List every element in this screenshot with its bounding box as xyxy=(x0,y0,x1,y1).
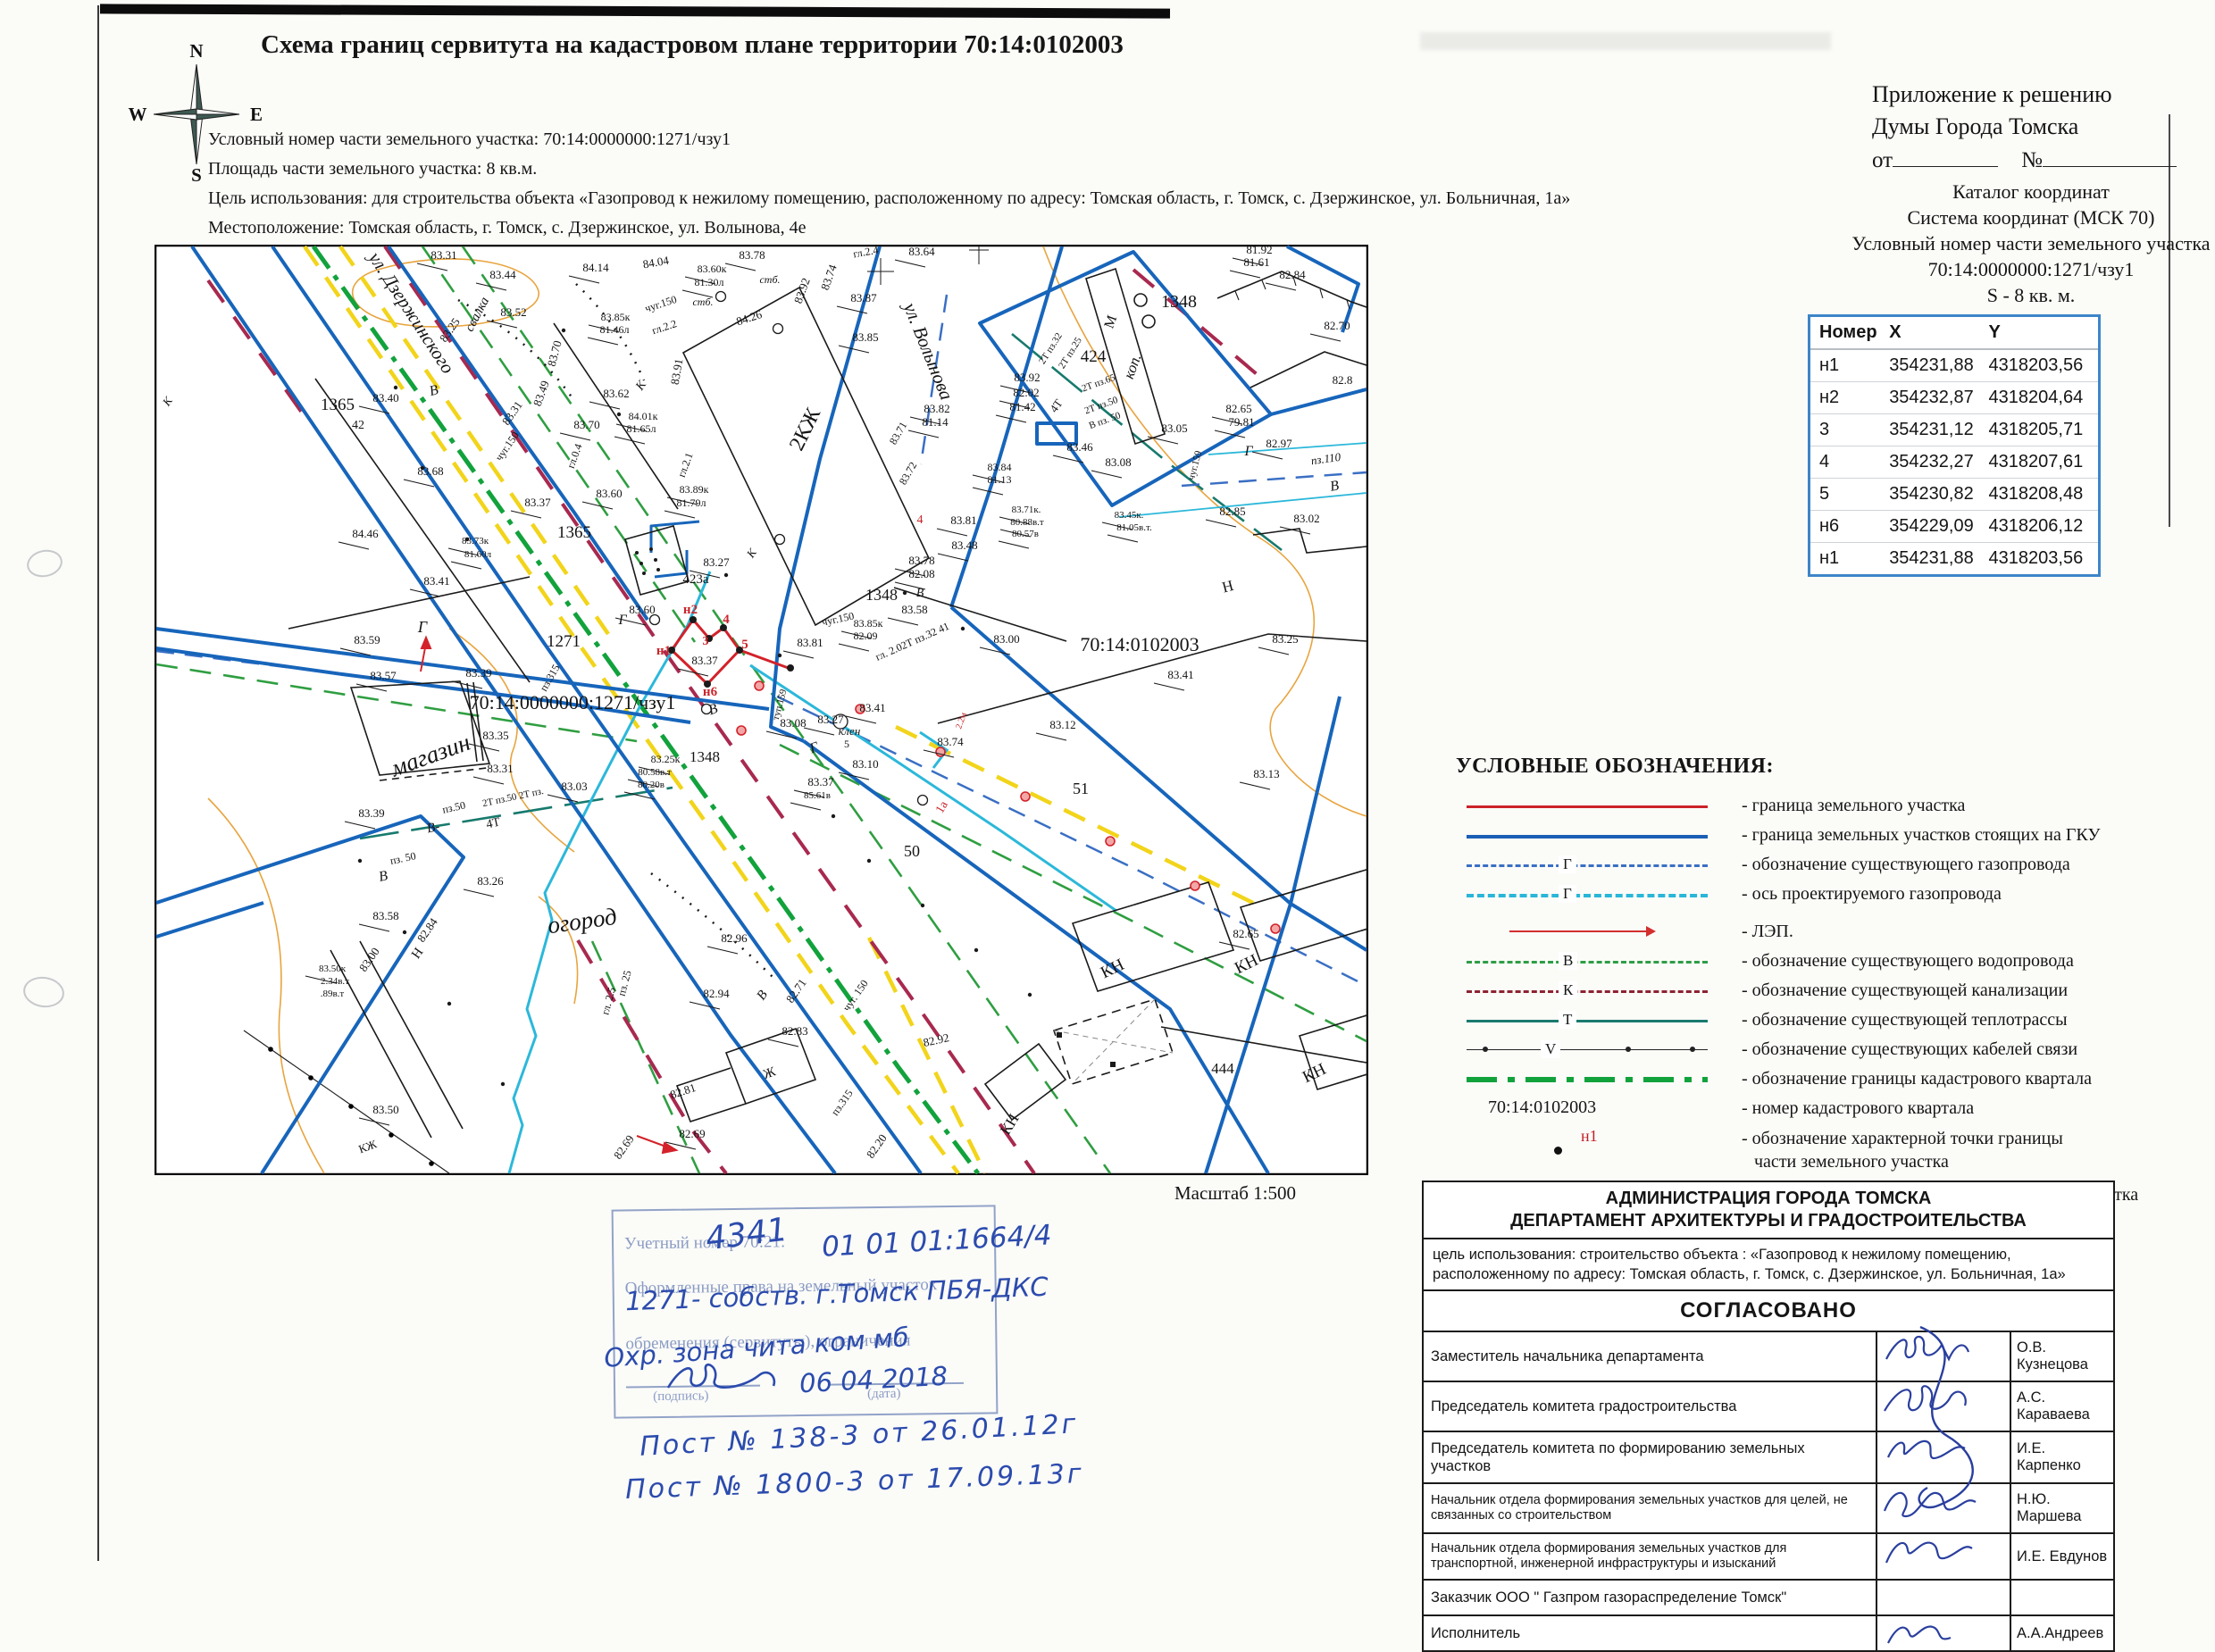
coordinate-cell: 354231,88 xyxy=(1887,349,1986,382)
compass-w: W xyxy=(129,104,147,125)
handwritten-resolution-2: Пост № 1800-3 от 17.09.13г xyxy=(625,1458,1085,1506)
annex-from-label: от xyxy=(1872,148,1893,172)
map-label: 85.61в xyxy=(804,790,831,801)
map-label: 82.96 xyxy=(721,931,748,945)
map-label: 82.85 xyxy=(1219,505,1245,518)
map-label: 70:14:0102003 xyxy=(1080,633,1199,655)
map-label: 83.45к. xyxy=(1115,510,1144,521)
map-label: 82.94 xyxy=(703,987,730,1000)
map-label: 83.25к xyxy=(651,753,681,765)
map-label: 84.46 xyxy=(352,527,379,540)
info-line-area: Площадь части земельного участка: 8 кв.м… xyxy=(208,154,1780,184)
approval-name xyxy=(2011,1581,2113,1614)
coordinate-cell: 4318207,61 xyxy=(1987,446,2100,479)
coordinate-cell: 354230,82 xyxy=(1887,479,1986,511)
approval-name: Н.Ю. Маршева xyxy=(2011,1484,2113,1532)
map-label: 83.44 xyxy=(489,268,516,281)
annex-block: Приложение к решению Думы Города Томска … xyxy=(1872,79,2215,177)
map-label: 80.58в.т xyxy=(638,767,672,778)
approval-row: Заместитель начальника департаментаО.В. … xyxy=(1424,1332,2113,1382)
approval-role: Заказчик ООО " Газпром газораспределение… xyxy=(1424,1581,1877,1614)
approval-role: Начальник отдела формирования земельных … xyxy=(1424,1484,1877,1532)
map-label: 83.39 xyxy=(358,806,384,820)
map-label: 83.37 xyxy=(524,496,551,509)
coordinate-row: н1354231,884318203,56 xyxy=(1810,543,2100,576)
signature-scribble xyxy=(1879,1616,2004,1652)
map-label: 83.58 xyxy=(901,603,927,616)
approval-name: И.Е. Карпенко xyxy=(2011,1432,2113,1482)
map-label: 1365 xyxy=(321,396,355,414)
coordinate-cell: 354231,12 xyxy=(1887,414,1986,446)
scan-artifact-smudge xyxy=(1420,32,1831,50)
map-label: 83.50к xyxy=(319,964,347,974)
map-label: 83.37 xyxy=(691,654,718,667)
map-label: 83.85к xyxy=(854,617,883,630)
header-info-block: Условный номер части земельного участка:… xyxy=(208,125,1780,243)
map-label: 83.37 xyxy=(807,775,834,788)
approval-name: О.В. Кузнецова xyxy=(2011,1332,2113,1381)
map-label: 83.89к xyxy=(680,483,709,496)
map-label: 83.58 xyxy=(372,909,398,922)
map-label: Г xyxy=(1243,444,1253,459)
scanned-document-page: { "compass": {"n":"N","e":"E","s":"S","w… xyxy=(0,0,2215,1565)
map-label: 2.34в.т xyxy=(321,976,349,987)
map-legend: УСЛОВНЫЕ ОБОЗНАЧЕНИЯ: - граница земельно… xyxy=(1456,755,2170,1220)
map-label: 83.85к xyxy=(601,311,631,323)
catalog-title: Каталог координат xyxy=(1843,179,2215,204)
map-label: 5 xyxy=(741,638,748,652)
map-label: н1 xyxy=(656,644,671,658)
map-label: 83.92 xyxy=(1014,371,1040,384)
map-label: 83.81 xyxy=(950,513,976,527)
coordinate-row: 4354232,274318207,61 xyxy=(1810,446,2100,479)
compass-s: S xyxy=(191,164,202,185)
legend-item-water: В - обозначение существующего водопровод… xyxy=(1456,950,2170,980)
approval-role: Заместитель начальника департамента xyxy=(1424,1332,1877,1381)
coordinate-cell: н6 xyxy=(1810,511,1888,543)
map-label: 83.41 xyxy=(1167,668,1193,681)
legend-item-projected-gas: Г - ось проектируемого газопровода xyxy=(1456,883,2170,913)
approval-role: Исполнитель xyxy=(1424,1616,1877,1650)
col-x: X xyxy=(1887,316,1986,350)
signature-scribble xyxy=(1879,1382,2004,1418)
water-swatch: В xyxy=(1456,950,1742,973)
map-label: 83.26 xyxy=(477,874,504,888)
legend-item-sewer: К - обозначение существующей канализации xyxy=(1456,980,2170,1009)
approval-signature-cell xyxy=(1877,1382,2011,1431)
coordinate-row: 5354230,824318208,48 xyxy=(1810,479,2100,511)
approval-signature-cell xyxy=(1877,1332,2011,1381)
signature-scribble xyxy=(1879,1484,2004,1520)
col-number: Номер xyxy=(1810,316,1888,350)
copy-hole-mark xyxy=(24,546,64,580)
map-label: 83.82 xyxy=(924,402,949,415)
map-label: 1348 xyxy=(690,748,720,765)
coordinate-cell: 354232,87 xyxy=(1887,382,1986,414)
approval-name: И.Е. Евдунов xyxy=(2011,1534,2113,1579)
map-label: 83.57 xyxy=(370,669,397,682)
coordinate-cell: н2 xyxy=(1810,382,1888,414)
info-line-location: Местоположение: Томская область, г. Томс… xyxy=(208,213,1780,243)
approval-signature-cell xyxy=(1877,1581,2011,1614)
map-label: 82.84 xyxy=(1279,268,1306,281)
approval-row: Председатель комитета по формированию зе… xyxy=(1424,1432,2113,1484)
coordinates-header-row: Номер X Y xyxy=(1810,316,2100,350)
map-label: 83.74 xyxy=(937,735,964,748)
map-label: 83.64 xyxy=(908,245,935,258)
map-label: 81.79л xyxy=(677,496,706,509)
map-label: 83.60 xyxy=(596,487,622,500)
approval-role: Председатель комитета по формированию зе… xyxy=(1424,1432,1877,1482)
quarter-number-swatch: 70:14:0102003 xyxy=(1456,1097,1742,1121)
approval-row: Председатель комитета градостроительства… xyxy=(1424,1382,2113,1432)
map-label: 83.31 xyxy=(487,762,513,775)
map-label: н6 xyxy=(703,685,718,699)
coordinate-cell: 4318206,12 xyxy=(1987,511,2100,543)
map-label: 444 xyxy=(1211,1060,1234,1077)
approval-signature-cell xyxy=(1877,1534,2011,1579)
approval-org: АДМИНИСТРАЦИЯ ГОРОДА ТОМСКА ДЕПАРТАМЕНТ … xyxy=(1424,1182,2113,1239)
map-label: 82.83 xyxy=(782,1024,807,1038)
coordinate-cell: 3 xyxy=(1810,414,1888,446)
map-label: 83.12 xyxy=(1049,718,1075,731)
approval-signature-cell xyxy=(1877,1484,2011,1532)
map-label: 80.57в xyxy=(1012,529,1039,539)
annex-date-blank xyxy=(1893,148,1998,167)
map-label: 82.09 xyxy=(854,630,878,642)
approval-role: Начальник отдела формирования земельных … xyxy=(1424,1534,1877,1579)
map-label: 83.25 xyxy=(1272,632,1298,646)
map-label: 83.52 xyxy=(500,305,526,319)
map-label: 81.61 xyxy=(1243,255,1269,269)
scan-artifact-top-bar xyxy=(100,4,1170,18)
quarter-boundary-swatch xyxy=(1456,1068,1742,1091)
legend-item-existing-gas: Г - обозначение существующего газопровод… xyxy=(1456,854,2170,883)
map-label: 83.84 xyxy=(988,461,1012,473)
map-label: 83.81 xyxy=(797,636,823,649)
legend-item-parcel-boundary: - граница земельного участка xyxy=(1456,795,2170,824)
coordinate-cell: 354231,88 xyxy=(1887,543,1986,576)
cadastral-map: ул. Дзержинскогоул. Волыновамагазиногоро… xyxy=(155,245,1368,1175)
map-label: 83.35 xyxy=(482,729,508,742)
map-label: н2 xyxy=(683,603,698,617)
boundary-point-swatch: н1 xyxy=(1456,1127,1742,1150)
map-label: 83.08 xyxy=(780,716,806,730)
catalog-parcel-number: 70:14:0000000:1271/чзу1 xyxy=(1843,256,2215,282)
annex-line2: Думы Города Томска xyxy=(1872,111,2215,143)
annex-num-blank xyxy=(2043,148,2177,167)
map-label: 83.70 xyxy=(573,418,599,431)
catalog-parcel-caption: Условный номер части земельного участка xyxy=(1843,230,2215,256)
map-label: 83.60к xyxy=(698,263,727,275)
map-label: 83.05 xyxy=(1161,421,1187,435)
coordinate-cell: 4318203,56 xyxy=(1987,349,2100,382)
sewer-swatch: К xyxy=(1456,980,1742,1003)
approval-table: АДМИНИСТРАЦИЯ ГОРОДА ТОМСКА ДЕПАРТАМЕНТ … xyxy=(1422,1181,2115,1652)
approval-row: Начальник отдела формирования земельных … xyxy=(1424,1534,2113,1581)
coordinate-cell: 4318203,56 xyxy=(1987,543,2100,576)
coordinate-cell: 4318205,71 xyxy=(1987,414,2100,446)
col-y: Y xyxy=(1987,316,2100,350)
map-label: 83.85 xyxy=(852,330,878,344)
map-label: 4 xyxy=(723,613,730,627)
legend-item-cables: V - обозначение существующих кабелей свя… xyxy=(1456,1039,2170,1068)
approval-role: Председатель комитета градостроительства xyxy=(1424,1382,1877,1431)
map-label: стб. xyxy=(692,296,713,308)
map-label: 83.46 xyxy=(1066,440,1093,454)
map-label: .89в.т xyxy=(321,989,345,999)
map-scale-label: Масштаб 1:500 xyxy=(1174,1182,1407,1205)
map-label: 83.02 xyxy=(1293,512,1319,525)
map-label: 70:14:0000000:1271/чзу1 xyxy=(470,691,676,713)
blue-line-swatch xyxy=(1456,824,1742,847)
catalog-area: S - 8 кв. м. xyxy=(1843,282,2215,308)
gas-dashed-swatch: Г xyxy=(1456,854,1742,877)
info-line-cadastral-number: Условный номер части земельного участка:… xyxy=(208,125,1780,154)
coordinate-cell: 5 xyxy=(1810,479,1888,511)
map-label: 82.8 xyxy=(1333,373,1353,387)
map-label: 81.65л xyxy=(627,422,656,435)
map-label: 1348 xyxy=(865,586,898,604)
map-label: 82.08 xyxy=(908,567,934,580)
map-label: 5 xyxy=(844,738,849,750)
map-label: 81.42 xyxy=(1009,400,1035,413)
legend-item-quarter-boundary: - обозначение границы кадастрового кварт… xyxy=(1456,1068,2170,1097)
map-label: 83.60 xyxy=(629,603,655,616)
approval-signature-cell xyxy=(1877,1432,2011,1482)
legend-item-lep: - ЛЭП. xyxy=(1456,913,2170,950)
map-label: 83.13 xyxy=(1253,767,1279,780)
coordinate-row: н2354232,874318204,64 xyxy=(1810,382,2100,414)
map-label: 82.02 xyxy=(1013,386,1039,399)
coordinate-row: н1354231,884318203,56 xyxy=(1810,349,2100,382)
approval-name: А.А.Андреев xyxy=(2011,1616,2113,1650)
map-label: 1365 xyxy=(557,523,591,542)
map-label: 83.39 xyxy=(465,666,491,680)
annex-num-label: № xyxy=(2021,148,2043,172)
map-label: 1348 xyxy=(1161,292,1197,312)
map-label: 83.48 xyxy=(951,538,977,552)
map-label: клен xyxy=(839,724,861,738)
info-line-purpose: Цель использования: для строительства об… xyxy=(208,184,1780,213)
signature-scribble xyxy=(1879,1432,2004,1468)
annex-from-line: от№ xyxy=(1872,145,2215,177)
map-label: 50 xyxy=(904,842,920,860)
heating-swatch: Т xyxy=(1456,1009,1742,1032)
approval-name: А.С. Караваева xyxy=(2011,1382,2113,1431)
map-label: 83.62 xyxy=(603,387,629,400)
approval-agreed-heading: СОГЛАСОВАНО xyxy=(1424,1291,2113,1332)
map-label: 81.30л xyxy=(695,276,724,288)
map-label: 83.78 xyxy=(908,554,934,567)
map-label: 3 xyxy=(703,635,709,648)
coordinate-row: н6354229,094318206,12 xyxy=(1810,511,2100,543)
legend-item-heating: Т - обозначение существующей теплотрассы xyxy=(1456,1009,2170,1039)
map-label: 83.50 xyxy=(372,1103,398,1116)
map-label: 4 xyxy=(917,513,924,527)
map-label: 80.20в xyxy=(638,780,664,790)
map-label: 83.27 xyxy=(817,713,844,726)
map-label: 83.68 xyxy=(417,464,443,478)
legend-item-quarter-number: 70:14:0102003 - номер кадастрового кварт… xyxy=(1456,1097,2170,1127)
signature-scribble xyxy=(1879,1534,2004,1570)
legend-item-gku-boundary: - граница земельных участков стоящих на … xyxy=(1456,824,2170,854)
coordinate-cell: 4 xyxy=(1810,446,1888,479)
map-label: 84.01к xyxy=(629,410,658,422)
map-label: 82.97 xyxy=(1266,437,1292,450)
map-label: 83.10 xyxy=(852,757,878,771)
coordinate-cell: 4318208,48 xyxy=(1987,479,2100,511)
map-label: 83.59 xyxy=(354,633,380,647)
signature-scribble xyxy=(1879,1332,2004,1368)
map-label: стб. xyxy=(759,273,780,286)
map-label: 51 xyxy=(1073,780,1089,797)
red-line-swatch xyxy=(1456,795,1742,818)
map-label: 83.87 xyxy=(850,291,877,305)
coordinate-cell: 4318204,64 xyxy=(1987,382,2100,414)
coordinate-cell: н1 xyxy=(1810,543,1888,576)
scan-artifact-left-line xyxy=(97,5,99,1561)
map-label: 81.14 xyxy=(922,415,949,429)
approval-signature-cell xyxy=(1877,1616,2011,1650)
map-label: 83.41 xyxy=(423,574,449,588)
map-label: 82.65 xyxy=(1225,402,1251,415)
coordinate-cell: н1 xyxy=(1810,349,1888,382)
map-label: 82.69 xyxy=(679,1127,705,1140)
coordinate-row: 3354231,124318205,71 xyxy=(1810,414,2100,446)
map-label: 424 xyxy=(1081,347,1107,366)
cadastral-map-drawing: ул. Дзержинскогоул. Волыновамагазиногоро… xyxy=(155,245,1368,1175)
approval-row: Заказчик ООО " Газпром газораспределение… xyxy=(1424,1581,2113,1616)
gas-axis-swatch: Г xyxy=(1456,883,1742,906)
map-label: 1271 xyxy=(547,632,581,651)
map-label: 83.03 xyxy=(561,780,587,793)
map-label: 83.27 xyxy=(703,555,730,569)
map-label: 83.00 xyxy=(993,632,1019,646)
page-title: Схема границ сервитута на кадастровом пл… xyxy=(261,30,1333,60)
annex-line1: Приложение к решению xyxy=(1872,79,2215,111)
lep-arrow-swatch xyxy=(1456,920,1742,943)
coordinate-cell: 354229,09 xyxy=(1887,511,1986,543)
map-label: 79.81 xyxy=(1228,415,1254,429)
map-label: 81.60л xyxy=(464,549,492,560)
map-label: 82.65 xyxy=(1233,927,1258,940)
map-label: 83.31 xyxy=(430,248,456,262)
approval-purpose: цель использования: строительство объект… xyxy=(1424,1239,2113,1291)
map-label: 81.13 xyxy=(988,473,1012,486)
map-label: Г xyxy=(417,618,428,636)
map-label: 82.70 xyxy=(1324,319,1350,332)
map-label: 84.14 xyxy=(582,261,609,274)
copy-hole-mark xyxy=(21,974,66,1010)
map-label: 81.46л xyxy=(600,323,630,336)
legend-title: УСЛОВНЫЕ ОБОЗНАЧЕНИЯ: xyxy=(1456,755,2170,779)
coordinate-catalog-heading: Каталог координат Система координат (МСК… xyxy=(1843,179,2215,308)
map-label: 83.78 xyxy=(739,248,765,262)
cables-swatch: V xyxy=(1456,1039,1742,1062)
compass-n: N xyxy=(189,40,203,62)
approval-row: Начальник отдела формирования земельных … xyxy=(1424,1484,2113,1534)
map-label: 83.73к xyxy=(462,536,489,546)
legend-item-boundary-point: н1 - обозначение характерной точки грани… xyxy=(1456,1127,2170,1184)
handwritten-signature-scribble xyxy=(661,1359,786,1398)
map-label: 83.71к. xyxy=(1012,505,1041,515)
map-label: 83.40 xyxy=(372,391,398,405)
map-label: 83.08 xyxy=(1105,455,1131,469)
map-label: 42 xyxy=(352,419,364,432)
coordinate-cell: 354232,27 xyxy=(1887,446,1986,479)
coordinates-table: Номер X Y н1354231,884318203,56н2354232,… xyxy=(1808,314,2101,577)
catalog-system: Система координат (МСК 70) xyxy=(1843,204,2215,230)
approval-row: ИсполнительА.А.Андреев xyxy=(1424,1616,2113,1650)
map-label: 80.88в.т xyxy=(1010,517,1044,528)
map-label: 81.05в.т. xyxy=(1116,522,1152,533)
compass-e: E xyxy=(250,104,263,125)
map-label: 83.41 xyxy=(859,701,885,714)
